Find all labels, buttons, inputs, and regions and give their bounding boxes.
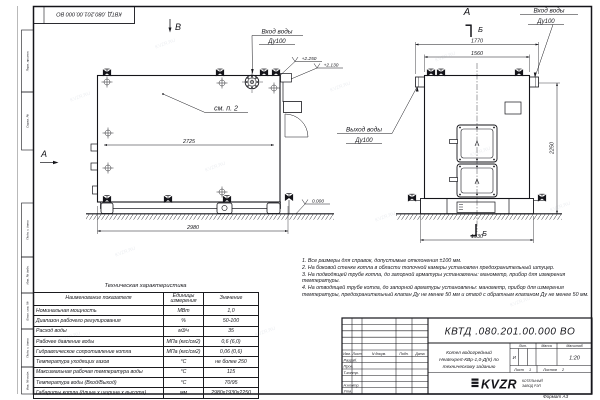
spec-cell: Гидравлическое сопротивление котла [34, 347, 164, 357]
svg-text:2: 2 [561, 368, 565, 372]
svg-text:Разраб.: Разраб. [344, 358, 358, 362]
spec-row: Температура воды (Вход/Выход)°С70/95 [34, 378, 259, 388]
logo-sub2: ЗАВОД РЭП [522, 384, 542, 388]
side-view [40, 19, 343, 234]
svg-text:Котел водогрейный: Котел водогрейный [446, 349, 492, 356]
spec-cell: МПа (кгс/см2) [164, 347, 204, 357]
spec-table: Техническая характеристика Наименование … [33, 283, 258, 399]
port-mark-icon [269, 83, 280, 94]
svg-text:Инв. № дубл.: Инв. № дубл. [26, 265, 30, 284]
valve-icon [285, 194, 292, 200]
spec-cell: % [164, 316, 204, 326]
note-item: 3. На подводящей трубе котла, до запорно… [302, 272, 590, 286]
outlet-label-1: Выход воды [346, 126, 382, 134]
valve-icon [260, 69, 267, 75]
door-handle [450, 178, 458, 182]
spec-cell: 115 [204, 367, 259, 377]
svg-text:Лит.: Лит. [518, 344, 527, 348]
port-mark-icon [102, 77, 113, 88]
port-mark-icon [103, 128, 114, 139]
spec-row: Номинальная мощностьМВт1,0 [34, 306, 259, 316]
svg-text:1:20: 1:20 [569, 356, 581, 362]
spec-cell: МПа (кгс/см2) [164, 336, 204, 346]
svg-text:Утв.: Утв. [344, 390, 353, 394]
outlet-leader [337, 86, 419, 143]
elev-zero-label: 0.000 [312, 198, 324, 204]
elev-top-label: +2.250 [302, 56, 317, 62]
stamp-number: КВТД .080.201.00.000 ВО [56, 11, 122, 17]
see-note-label: см. п. 2 [214, 106, 238, 113]
svg-text:Инв. № подл.: Инв. № подл. [26, 371, 30, 390]
svg-text:Подп. и дата: Подп. и дата [26, 338, 30, 358]
dim-1560-label: 1560 [471, 51, 483, 57]
spec-table-grid: Наименование показателя Единицы измерени… [33, 292, 259, 399]
svg-text:Подп. и дата: Подп. и дата [26, 220, 30, 240]
svg-text:N докум.: N докум. [372, 352, 386, 356]
logo-sub1: КОТЕЛЬНЫЙ [522, 379, 543, 383]
margin-labels: Перв. примен. Справ. № Подп. и дата Инв.… [26, 51, 30, 391]
door-handle [450, 140, 458, 144]
spec-col-unit: Единицы измерения [164, 293, 204, 306]
valve-icon [103, 196, 110, 202]
spec-cell: 2980х1930х2250 [204, 388, 259, 398]
spec-row: Рабочее давление водыМПа (кгс/см2)0,6 (6… [34, 336, 259, 346]
spec-cell: м3/ч [164, 326, 204, 336]
view-b-arrow [169, 19, 172, 33]
valve-icon [427, 69, 434, 75]
spec-cell: Температура уходящих газов [34, 357, 164, 367]
valve-icon [223, 196, 230, 202]
notes: 1. Все размеры для справок, допустимые о… [302, 258, 590, 299]
note-item: 2. На боковой стенке котла в области топ… [302, 265, 590, 272]
svg-text:техническому заданию: техническому заданию [443, 364, 496, 370]
logo-text: KVZR [481, 378, 517, 392]
section-b-label-top: Б [478, 25, 483, 34]
spec-cell: 1,0 [204, 306, 259, 316]
svg-text:Листов: Листов [542, 368, 557, 372]
spec-row: Диапазон рабочего регулирования%50-100 [34, 316, 259, 326]
view-b-label: В [175, 22, 181, 32]
note-item: 1. Все размеры для справок, допустимые о… [302, 258, 590, 265]
spec-cell: МВт [164, 306, 204, 316]
spec-cell: Габариты котла (длина х ширина х высота) [34, 388, 164, 398]
note-item: 4. На отводящей трубе котла, до запорной… [302, 285, 590, 299]
spec-cell: 35 [204, 326, 259, 336]
svg-text:И: И [513, 355, 517, 360]
format-label: Формат А3 [543, 394, 568, 399]
svg-text:Дата: Дата [414, 352, 424, 356]
valve-icon [437, 69, 444, 75]
tb-signature-rows: Разраб. Пров. Т.контр. Н.контр. Утв. [344, 358, 360, 393]
svg-text:1: 1 [529, 368, 531, 372]
svg-text:Т.контр.: Т.контр. [344, 371, 359, 375]
tb-lit-row: Лит. Масса Масштаб И 1:20 Лист 1 Листов … [513, 344, 584, 372]
dim-2725-label: 2725 [182, 139, 196, 145]
spec-cell: Диапазон рабочего регулирования [34, 316, 164, 326]
valve-icon [515, 69, 522, 75]
spec-cell: Температура воды (Вход/Выход) [34, 378, 164, 388]
spec-cell: 0,6 (6,0) [204, 336, 259, 346]
spec-cell: 50-100 [204, 316, 259, 326]
dim-1770-label: 1770 [471, 38, 483, 44]
elevation-marks [280, 57, 343, 214]
dim-2980-label: 2980 [186, 225, 199, 231]
tb-header-row: Изм. Лист N докум. Подп. Дата [343, 352, 424, 356]
svg-text:Heatexpert-КВр-1,0-Д(К) по: Heatexpert-КВр-1,0-Д(К) по [439, 357, 499, 363]
elev-mid-label: +2.130 [324, 62, 339, 68]
product-name: Котел водогрейный Heatexpert-КВр-1,0-Д(К… [439, 349, 499, 370]
spec-row: Габариты котла (длина х ширина х высота)… [34, 388, 259, 398]
spec-cell: 70/95 [204, 378, 259, 388]
spec-cell: °С [164, 367, 204, 377]
spec-row: Максимальная рабочая температура воды°С1… [34, 367, 259, 377]
view-a-arrow [40, 161, 59, 164]
drawing-sheet: КВТД .080.201.00.000 ВО Перв. примен. Сп… [0, 0, 600, 400]
burner-box [284, 102, 302, 113]
spec-cell: не более 250 [204, 357, 259, 367]
valve-icon [103, 69, 110, 75]
sight-glass [505, 102, 521, 114]
valve-icon [272, 69, 279, 75]
inlet-label-2: Ду100 [267, 39, 286, 45]
company-logo: KVZR КОТЕЛЬНЫЙ ЗАВОД РЭП [472, 378, 544, 392]
front-inlet-label-1: Вход воды [533, 7, 564, 15]
svg-text:Н.контр.: Н.контр. [344, 383, 360, 387]
svg-text:Лист: Лист [513, 368, 524, 372]
svg-text:Масса: Масса [541, 344, 551, 348]
svg-text:Справ. №: Справ. № [26, 113, 30, 128]
spec-header-row: Наименование показателя Единицы измерени… [34, 293, 259, 306]
svg-text:Пров.: Пров. [344, 365, 354, 369]
front-inlet-label-2: Ду100 [536, 19, 555, 25]
outlet-label-2: Ду100 [354, 138, 373, 144]
valve-icon [408, 194, 415, 200]
spec-row: Гидравлическое сопротивление котлаМПа (к… [34, 347, 259, 357]
valve-icon [164, 196, 171, 202]
port-mark-icon [103, 163, 114, 174]
port-mark-icon [217, 78, 228, 89]
spec-col-name: Наименование показателя [34, 293, 164, 306]
spec-cell: Рабочее давление воды [34, 336, 164, 346]
spec-cell: °С [164, 357, 204, 367]
door-swing-arc [285, 114, 308, 137]
dim-height-label: 2250 [550, 142, 556, 155]
valve-icon [216, 69, 223, 75]
front-view-title: А [463, 7, 471, 18]
inlet-label-1: Вход воды [261, 28, 292, 36]
spec-cell: Расход воды [34, 326, 164, 336]
spec-row: Расход водым3/ч35 [34, 326, 259, 336]
dim-1930-label: 1930 [471, 234, 483, 240]
valve-icon [538, 194, 545, 200]
view-a-label: А [40, 149, 47, 159]
spec-row: Температура уходящих газов°Сне более 250 [34, 357, 259, 367]
spec-cell: 0,06 (0,6) [204, 347, 259, 357]
spec-cell: мм [164, 388, 204, 398]
svg-text:Масштаб: Масштаб [566, 344, 583, 348]
svg-text:Подп.: Подп. [399, 352, 408, 356]
spec-cell: °С [164, 378, 204, 388]
spec-cell: Номинальная мощность [34, 306, 164, 316]
spec-cell: Максимальная рабочая температура воды [34, 367, 164, 377]
doc-number: КВТД .080.201.00.000 ВО [445, 327, 576, 338]
svg-text:Перв. примен.: Перв. примен. [26, 51, 30, 72]
spec-col-value: Значение [204, 293, 259, 306]
svg-text:Изм.: Изм. [343, 352, 350, 356]
spec-table-title: Техническая характеристика [33, 283, 258, 289]
svg-text:Лист: Лист [351, 352, 361, 356]
lower-door [450, 164, 498, 197]
svg-text:Взам. инв. №: Взам. инв. № [26, 301, 30, 321]
